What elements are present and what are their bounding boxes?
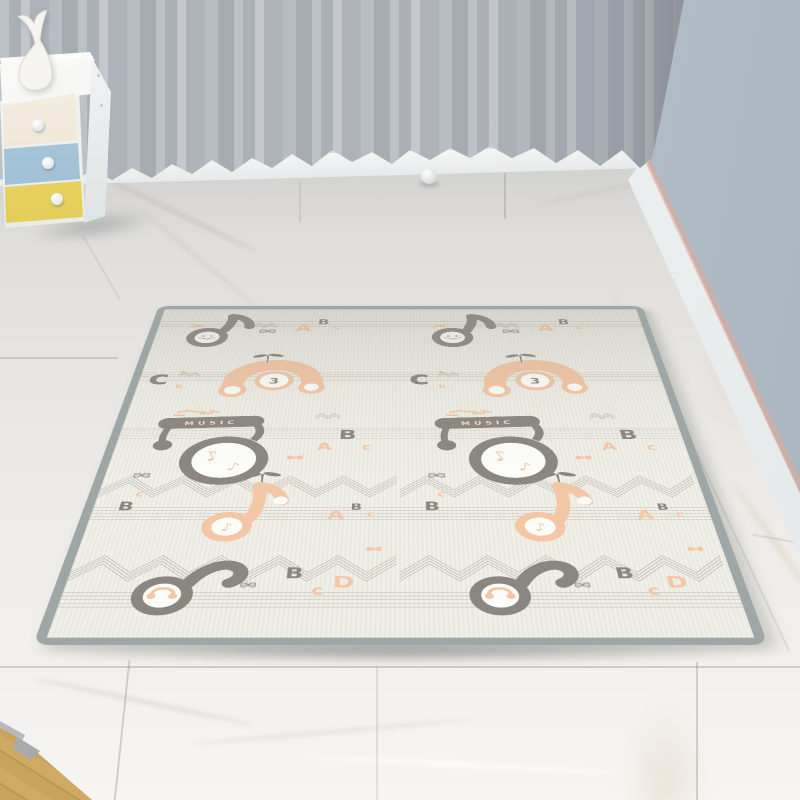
tile-grout-line: [376, 667, 378, 800]
play-mat-area: 3 MUSIC ♪ ♪: [33, 0, 768, 645]
play-mat: 3 MUSIC ♪ ♪: [33, 306, 768, 645]
mat-lighting: [47, 309, 755, 637]
tile-grout-line: [696, 662, 698, 800]
tile-grout-line: [0, 666, 800, 668]
room-photo: 3 MUSIC ♪ ♪: [0, 0, 800, 800]
